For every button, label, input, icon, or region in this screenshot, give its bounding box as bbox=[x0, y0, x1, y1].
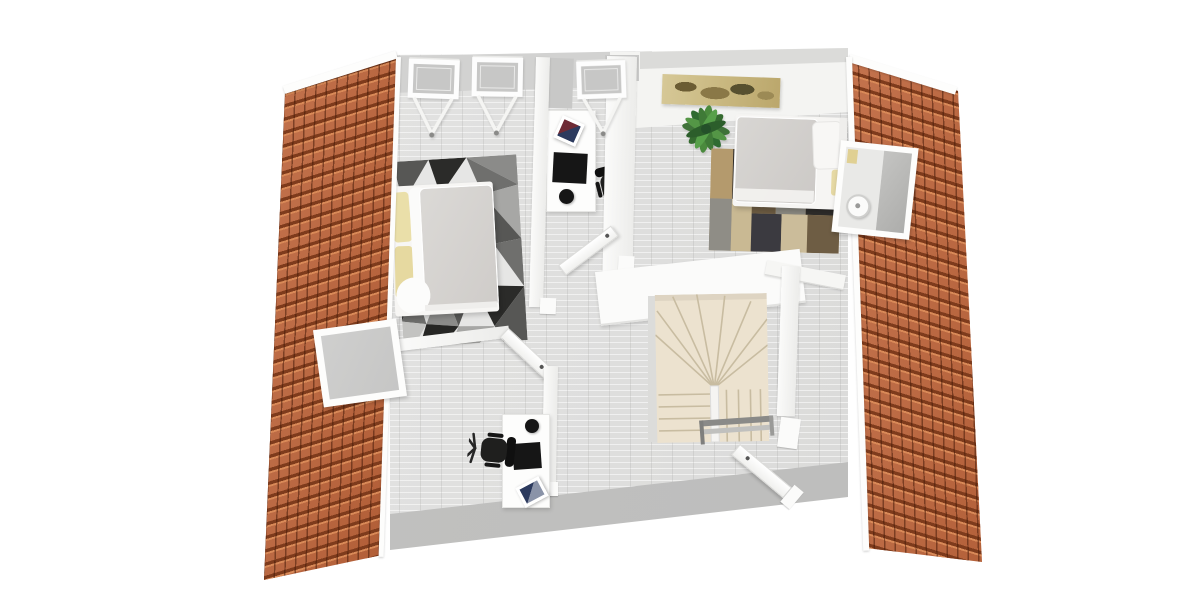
railing-post bbox=[769, 416, 774, 436]
desk-lamp bbox=[559, 189, 574, 204]
bed-double bbox=[389, 181, 500, 316]
roof-window-1 bbox=[403, 57, 464, 143]
stair-railing bbox=[699, 415, 777, 446]
basin-drain bbox=[855, 203, 860, 208]
monitor bbox=[552, 152, 588, 184]
dormer-left bbox=[313, 319, 407, 408]
dormer-left-floor bbox=[321, 326, 399, 399]
door-handle bbox=[745, 455, 751, 461]
door-jamb bbox=[540, 298, 557, 315]
door-jamb bbox=[777, 417, 801, 449]
railing-lower-bar bbox=[702, 425, 772, 435]
roof-window-2 bbox=[467, 56, 526, 141]
door-handle bbox=[604, 233, 610, 239]
roof-window-3 bbox=[573, 57, 632, 143]
dormer-wood-sill bbox=[847, 149, 858, 164]
bed-single bbox=[732, 114, 847, 210]
monitor bbox=[512, 442, 542, 470]
dormer-right bbox=[831, 140, 918, 240]
desk-lamp bbox=[525, 419, 539, 433]
duvet bbox=[419, 184, 499, 310]
framed-picture bbox=[515, 476, 548, 508]
office-chair-study bbox=[466, 430, 518, 471]
floor-plan-canvas bbox=[0, 0, 1200, 600]
